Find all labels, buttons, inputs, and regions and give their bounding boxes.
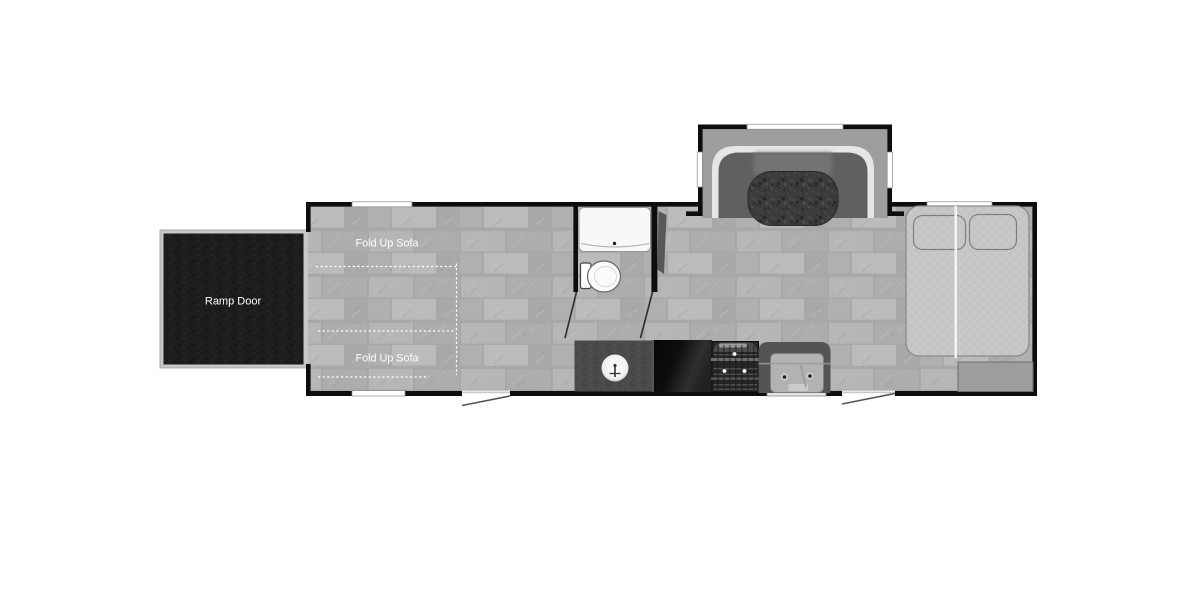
svg-text:Fold Up Sofa: Fold Up Sofa: [355, 238, 418, 250]
svg-text:Ramp Door: Ramp Door: [205, 296, 262, 308]
svg-text:Fold Up Sofa: Fold Up Sofa: [355, 353, 418, 365]
